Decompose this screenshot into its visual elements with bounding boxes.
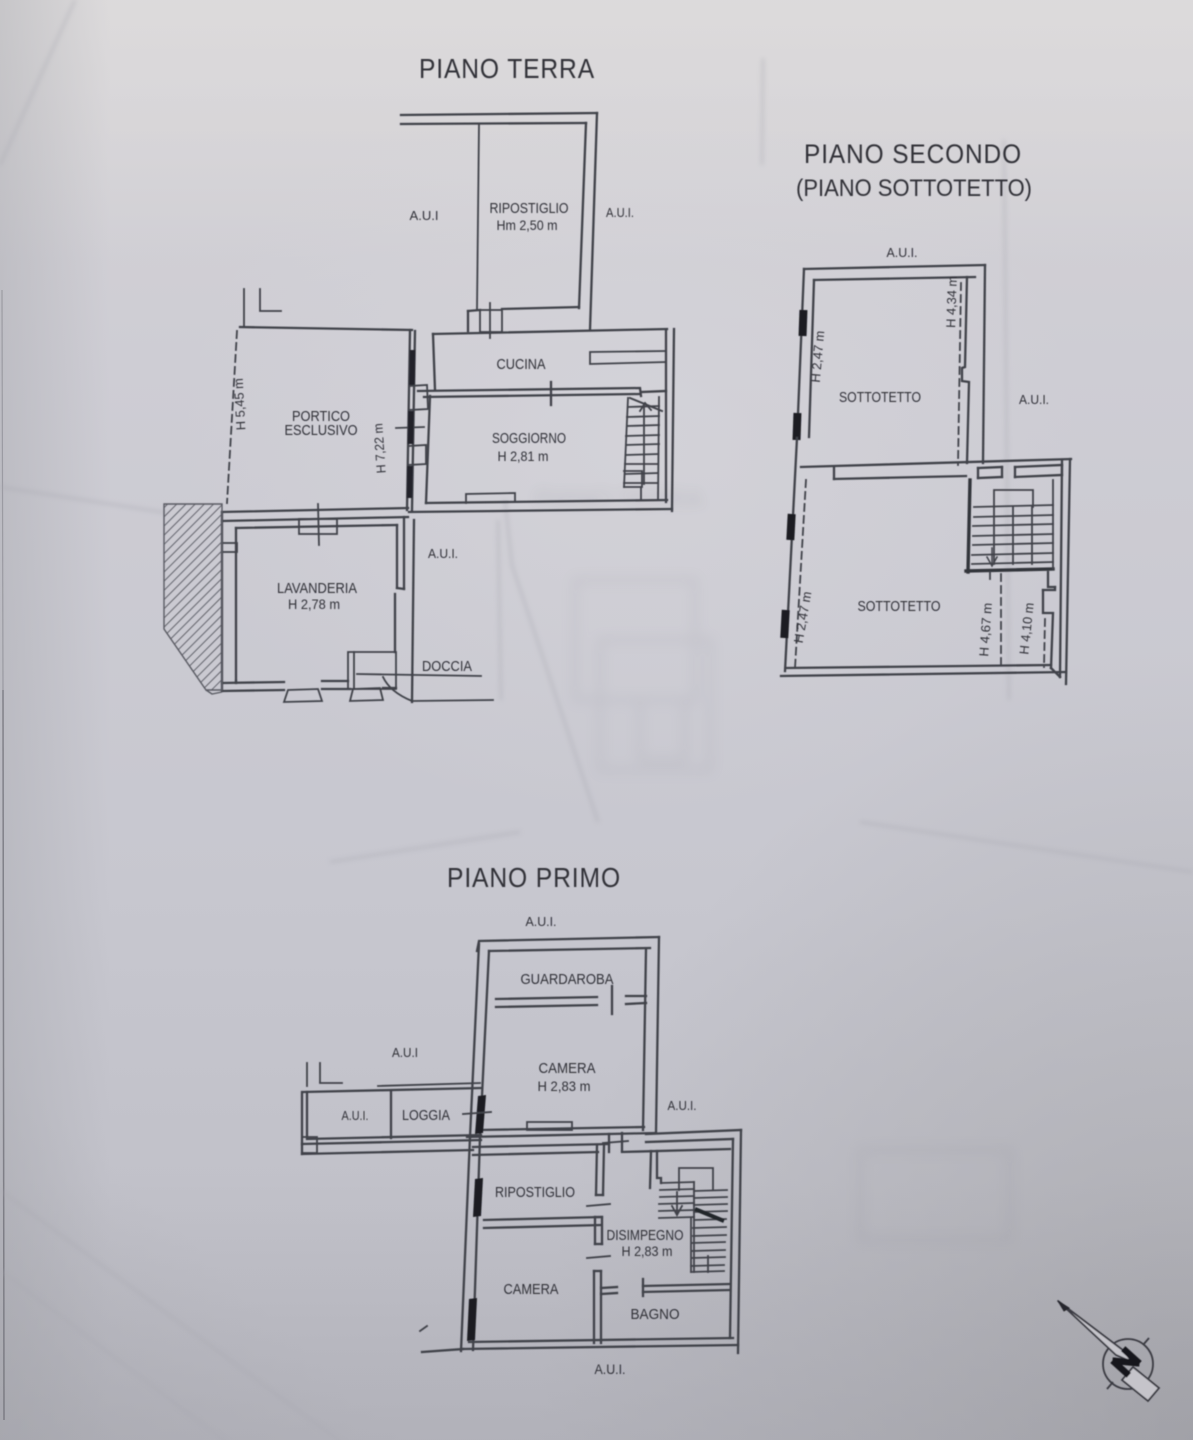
svg-text:Hm 2,50 m: Hm 2,50 m (497, 218, 558, 233)
svg-text:CAMERA: CAMERA (539, 1061, 596, 1077)
svg-text:A.U.I: A.U.I (392, 1045, 418, 1060)
svg-text:H 5,45 m: H 5,45 m (231, 378, 249, 431)
svg-text:H 4,34 m: H 4,34 m (943, 276, 960, 328)
svg-text:A.U.I.: A.U.I. (342, 1108, 369, 1123)
svg-text:A.U.I.: A.U.I. (1019, 392, 1049, 407)
svg-text:H 2,81 m: H 2,81 m (498, 449, 549, 464)
svg-text:A.U.I.: A.U.I. (887, 245, 918, 260)
svg-text:H 2,78 m: H 2,78 m (288, 597, 340, 612)
svg-text:A.U.I: A.U.I (410, 208, 439, 223)
svg-text:DOCCIA: DOCCIA (422, 659, 472, 675)
svg-text:A.U.I.: A.U.I. (606, 205, 634, 220)
svg-text:H 2,83 m: H 2,83 m (538, 1079, 591, 1094)
svg-text:A.U.I.: A.U.I. (595, 1361, 626, 1377)
svg-text:PIANO TERRA: PIANO TERRA (419, 53, 595, 84)
svg-text:(PIANO SOTTOTETTO): (PIANO SOTTOTETTO) (796, 175, 1032, 202)
svg-text:PIANO PRIMO: PIANO PRIMO (447, 862, 621, 893)
svg-text:A.U.I.: A.U.I. (428, 546, 458, 561)
svg-text:SOTTOTETTO: SOTTOTETTO (839, 390, 921, 406)
svg-text:LOGGIA: LOGGIA (402, 1108, 450, 1124)
svg-text:RIPOSTIGLIO: RIPOSTIGLIO (490, 201, 569, 217)
svg-text:BAGNO: BAGNO (631, 1307, 680, 1323)
svg-text:CUCINA: CUCINA (497, 357, 546, 373)
svg-text:ESCLUSIVO: ESCLUSIVO (285, 423, 358, 439)
svg-text:DISIMPEGNO: DISIMPEGNO (607, 1228, 684, 1244)
svg-text:LAVANDERIA: LAVANDERIA (277, 581, 357, 597)
svg-text:SOTTOTETTO: SOTTOTETTO (858, 599, 941, 615)
svg-text:CAMERA: CAMERA (504, 1282, 559, 1298)
svg-text:PIANO SECONDO: PIANO SECONDO (804, 139, 1022, 169)
svg-text:A.U.I.: A.U.I. (668, 1098, 697, 1113)
svg-text:SOGGIORNO: SOGGIORNO (492, 431, 566, 447)
svg-text:GUARDAROBA: GUARDAROBA (521, 972, 614, 988)
svg-text:A.U.I.: A.U.I. (526, 914, 557, 929)
svg-text:RIPOSTIGLIO: RIPOSTIGLIO (495, 1185, 575, 1201)
svg-text:H 2,83 m: H 2,83 m (622, 1244, 673, 1259)
